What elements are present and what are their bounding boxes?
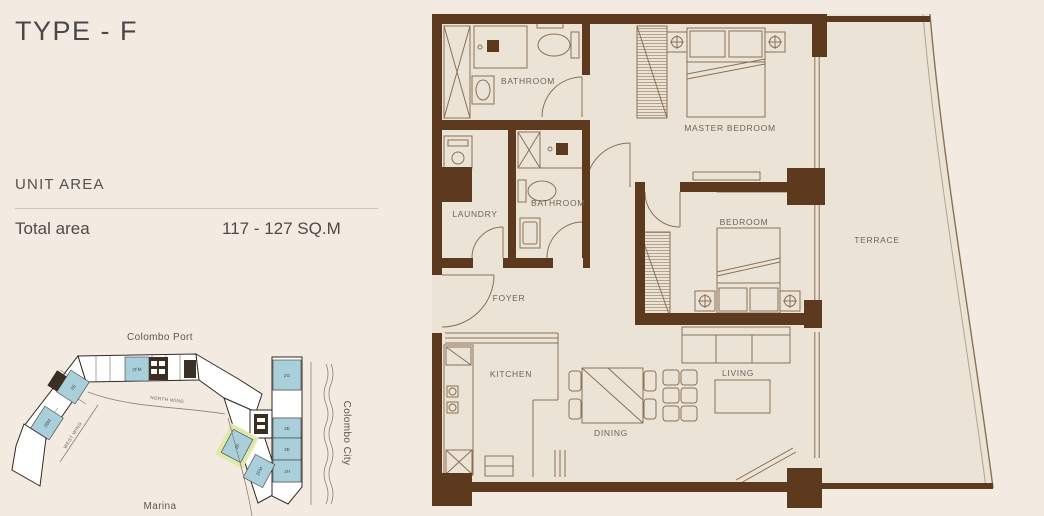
room-label-terrace: TERRACE [854, 235, 900, 245]
total-area-value: 117 - 127 SQ.M [222, 219, 341, 239]
floor-plan: BATHROOM MASTER BEDROOM LAUNDRY BATHROOM… [430, 0, 1044, 516]
room-label-dining: DINING [594, 428, 628, 438]
room-label-laundry: LAUNDRY [452, 209, 497, 219]
page: TYPE - F UNIT AREA Total area 117 - 127 … [0, 0, 1044, 516]
page-title: TYPE - F [15, 16, 138, 47]
north-wing-label: NORTH WING [150, 395, 184, 404]
room-label-foyer: FOYER [493, 293, 526, 303]
unit-label-east-3: 2E [284, 447, 290, 452]
room-label-living: LIVING [722, 368, 754, 378]
map-label-marina: Marina [144, 501, 177, 512]
unit-label-north: 2FM [132, 367, 142, 372]
room-label-bathroom-top: BATHROOM [501, 76, 555, 86]
room-label-bedroom: BEDROOM [720, 217, 769, 227]
unit-label-east-1: 2G [284, 373, 291, 378]
unit-label-east-2: 2E [284, 426, 290, 431]
unit-area-heading: UNIT AREA [15, 176, 105, 193]
room-label-master-bedroom: MASTER BEDROOM [684, 123, 776, 133]
map-label-colombo-city: Colombo City [341, 401, 352, 466]
west-wing-label: WEST WING [63, 421, 83, 450]
room-label-bathroom-mid: BATHROOM [531, 198, 585, 208]
map-label-colombo-port: Colombo Port [127, 332, 193, 343]
divider [15, 208, 378, 209]
total-area-label: Total area [15, 219, 90, 239]
unit-label-east-4: 2H [284, 469, 290, 474]
room-label-kitchen: KITCHEN [490, 369, 532, 379]
site-plan: Colombo Port Marina Colombo City NORTH W… [0, 320, 356, 516]
